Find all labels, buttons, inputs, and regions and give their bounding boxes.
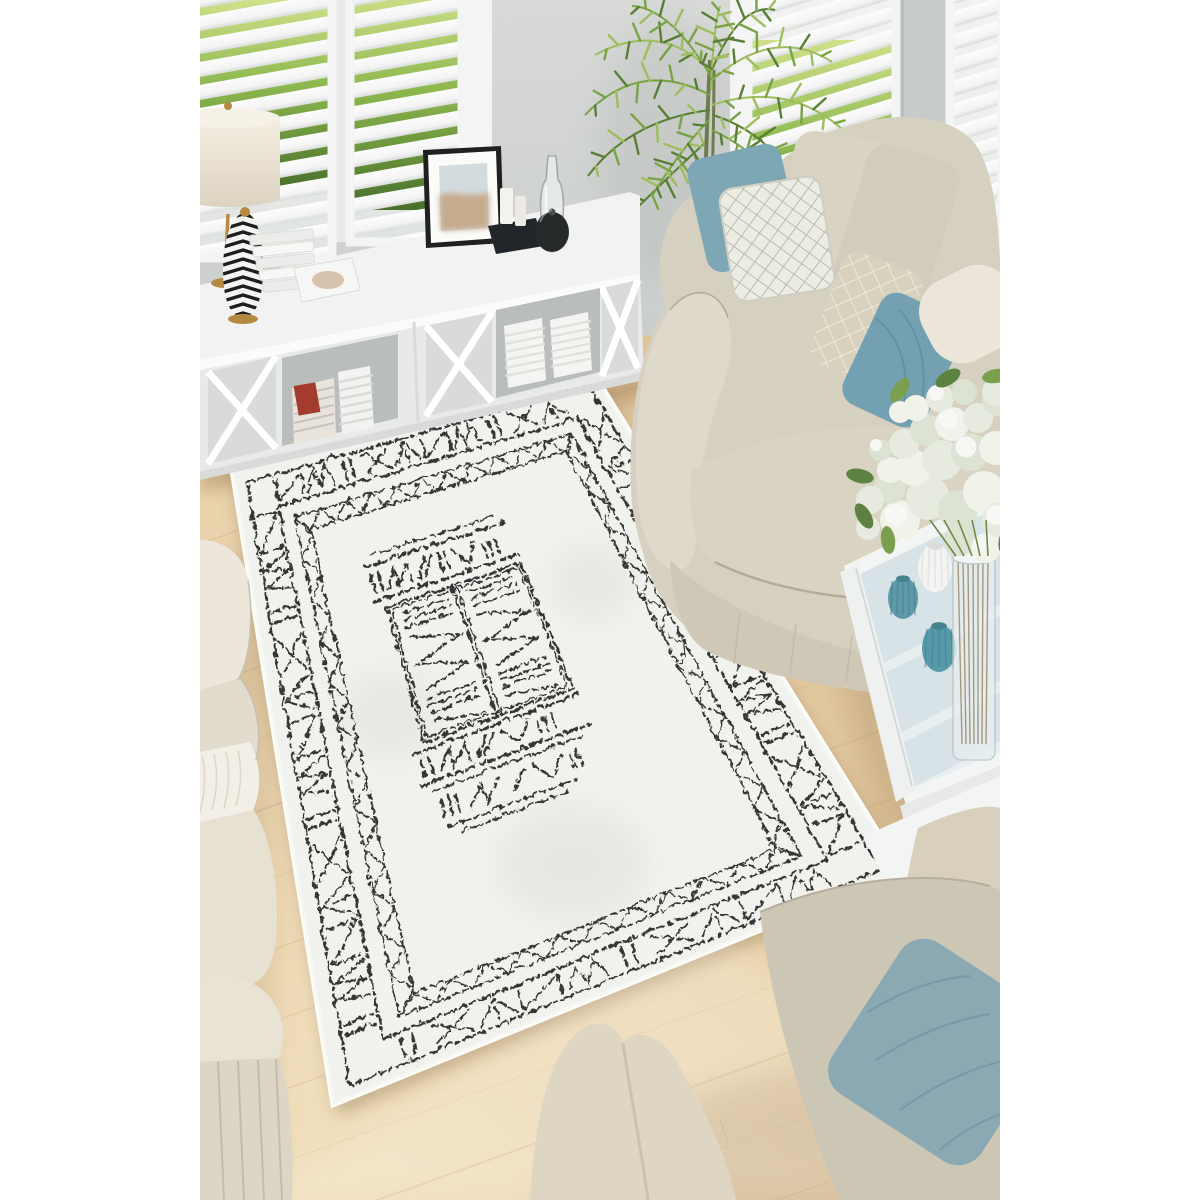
palm-plant-part (636, 83, 638, 103)
ceramic-vases-part (973, 560, 974, 744)
left-sofa-part (200, 742, 259, 822)
flower-bouquet-part (928, 385, 943, 400)
living-room-scene (200, 0, 1000, 1200)
console-x-panel (602, 280, 638, 376)
ceramic-vases-part (927, 542, 943, 550)
table-lamp-part (224, 102, 232, 110)
console-x-panel (208, 356, 276, 464)
flower-bouquet-part (951, 379, 977, 405)
palm-plant-part (721, 134, 722, 144)
palm-plant-part (657, 123, 658, 142)
palm-plant-part (694, 124, 704, 125)
flower-bouquet-part (956, 437, 977, 458)
ceramic-vases-part (941, 549, 942, 587)
decor-cluster-part (549, 209, 556, 216)
ceramic-vases-part (932, 629, 933, 667)
flower-bouquet-part (885, 504, 907, 526)
area-rug-part (497, 806, 648, 921)
book-stack-part (312, 271, 344, 289)
decor-cluster-part (515, 196, 526, 226)
ceramic-vases-part (896, 575, 910, 582)
pillow-lattice (718, 175, 837, 304)
picture-frame-part (439, 192, 489, 231)
decor-cluster-part (535, 212, 569, 252)
palm-plant-part (811, 52, 813, 65)
ceramic-vases-part (897, 581, 898, 615)
table-lamp-part (200, 118, 280, 207)
striped-vase-part (228, 314, 258, 324)
palm-plant-part (595, 105, 596, 115)
striped-vase-part (240, 207, 250, 217)
flower-bouquet-part (889, 401, 911, 423)
product-photo (200, 0, 1000, 1200)
area-rug-part (550, 543, 634, 620)
palm-plant-part (801, 104, 802, 123)
flower-bouquet-part (870, 439, 882, 451)
palm-plant-part (644, 0, 646, 9)
palm-plant-part (823, 116, 824, 129)
ceramic-vases-part (982, 560, 983, 744)
left-sofa-part (200, 810, 277, 992)
ceramic-vases-part (945, 629, 946, 667)
flower-bouquet-part (939, 410, 958, 429)
console-x-panel (426, 312, 492, 416)
ceramic-vases-part (931, 622, 947, 630)
ceramic-vases-part (908, 581, 909, 615)
decor-cluster-part (500, 188, 513, 224)
page-canvas: { "image": { "type": "interior product p… (0, 0, 1200, 1200)
palm-plant-part (733, 50, 734, 63)
ceramic-vases-part (928, 549, 929, 587)
palm-plant-part (649, 178, 662, 180)
